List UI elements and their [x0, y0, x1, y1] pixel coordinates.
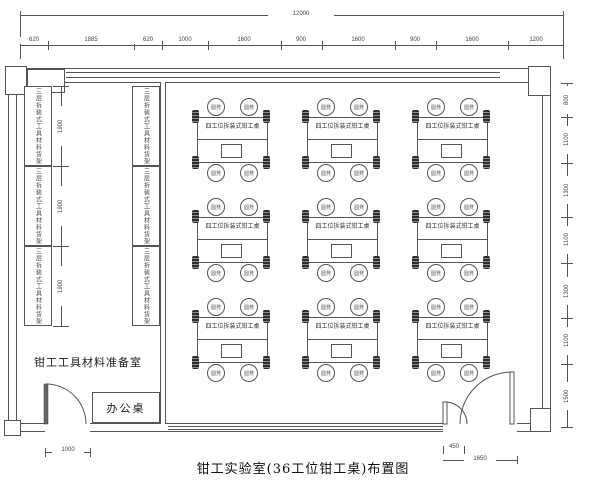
dim-tick	[561, 427, 573, 428]
dim-top-segment-label: 620	[133, 37, 163, 44]
dim-tick	[53, 86, 69, 87]
dim-tick	[561, 364, 573, 365]
dim-door-leaf-label: 450	[444, 444, 464, 451]
dim-top-segment-label: 1600	[457, 37, 487, 44]
dim-shelf-label: 1900	[54, 266, 68, 306]
door-leaf-right-small	[443, 402, 447, 424]
dim-tick	[53, 246, 69, 247]
dim-right-segment-label: 1100	[559, 226, 575, 254]
dim-tick	[561, 318, 573, 319]
dim-tick	[322, 41, 323, 50]
dim-top-segment-label: 1200	[521, 37, 551, 44]
dim-tick	[395, 41, 396, 50]
dim-tick	[53, 166, 69, 167]
dim-right-segment-label: 1300	[559, 176, 575, 204]
dim-right-segment-label: 1500	[559, 382, 575, 410]
dim-right-segment-label: 800	[559, 86, 575, 114]
dim-tick	[561, 117, 573, 118]
dim-door-left-label: 1000	[52, 447, 84, 454]
dim-right-segment-label: 1100	[559, 126, 575, 154]
door-arc-right-large	[460, 372, 512, 424]
dim-tick	[48, 41, 49, 50]
drawing-title: 钳工实验室(36工位钳工桌)布置图	[150, 458, 456, 477]
dim-top-segment-label: 900	[286, 37, 316, 44]
dim-tick	[561, 163, 573, 164]
dim-overall-label: 12000	[268, 11, 334, 18]
dim-tick	[561, 83, 573, 84]
dim-top-segment-label: 620	[19, 37, 49, 44]
dim-tick	[281, 41, 282, 50]
dim-tick	[208, 41, 209, 50]
dim-tick	[162, 41, 163, 50]
floor-plan: 钳工工具材料准备室 办公桌 钳工实验室(36工位钳工桌)布置图 12000620…	[0, 0, 603, 491]
dim-tick	[508, 41, 509, 50]
dim-ext-line	[563, 11, 564, 59]
dim-tick	[563, 41, 564, 50]
dim-tick	[90, 448, 91, 457]
dim-shelf-label: 1900	[54, 186, 68, 226]
dim-tick	[517, 456, 518, 464]
door-leaf-right-large	[510, 372, 514, 424]
dim-right-segment-label: 1300	[559, 277, 575, 305]
dim-tick	[464, 446, 465, 454]
dim-top-segment-label: 1885	[76, 37, 106, 44]
dim-ext-line	[20, 11, 21, 59]
dim-tick	[45, 448, 46, 457]
dim-tick	[561, 263, 573, 264]
dim-chain-top	[20, 45, 563, 46]
doors-layer	[0, 0, 603, 491]
dim-top-segment-label: 1000	[170, 37, 200, 44]
dim-shelf-label: 1900	[54, 106, 68, 146]
dim-top-segment-label: 1600	[229, 37, 259, 44]
prep-room-label: 钳工工具材料准备室	[18, 354, 158, 370]
dim-tick	[561, 217, 573, 218]
dim-top-segment-label: 1600	[343, 37, 373, 44]
door-arc-left	[46, 384, 86, 424]
dim-tick	[436, 41, 437, 50]
dim-tick	[53, 326, 69, 327]
door-leaf-left	[44, 384, 48, 424]
dim-right-segment-label: 1100	[559, 327, 575, 355]
dim-door-right-label: 1650	[464, 456, 496, 463]
dim-top-segment-label: 900	[400, 37, 430, 44]
